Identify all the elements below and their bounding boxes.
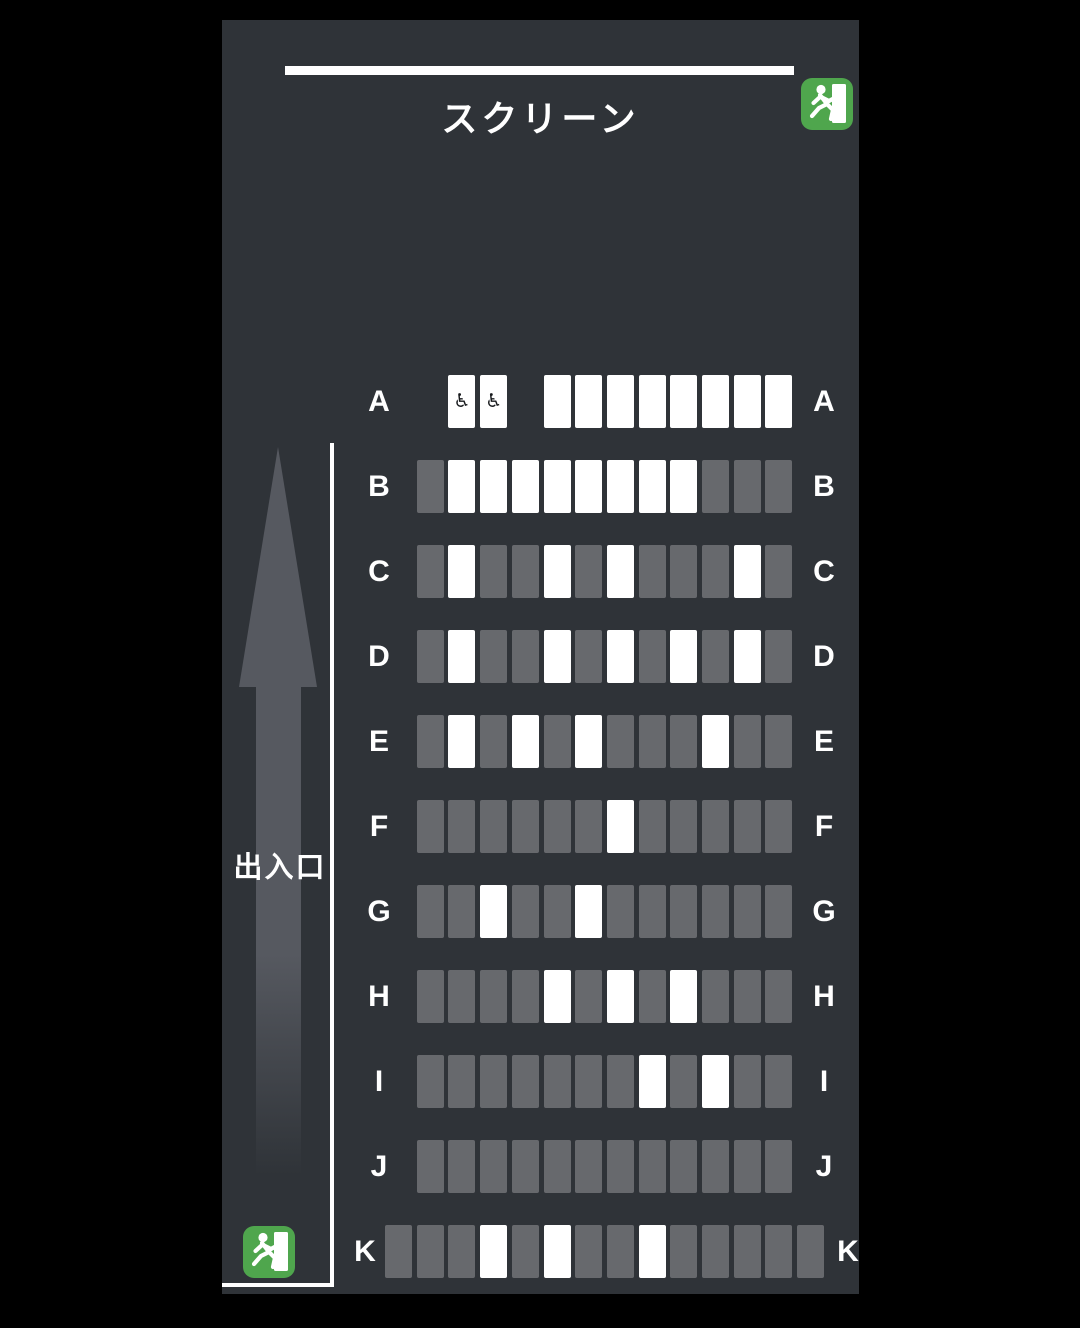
row-label-E-right: E <box>804 715 844 768</box>
row-label-E-left: E <box>359 715 399 768</box>
seat-J9 <box>639 1140 666 1193</box>
row-label-B-right: B <box>804 460 844 513</box>
seat-H2 <box>417 970 444 1023</box>
seat-J6 <box>544 1140 571 1193</box>
seat-I6 <box>544 1055 571 1108</box>
seat-K11 <box>702 1225 729 1278</box>
seat-H8[interactable] <box>607 970 634 1023</box>
seat-K4[interactable] <box>480 1225 507 1278</box>
seat-C4 <box>480 545 507 598</box>
seat-G3 <box>448 885 475 938</box>
row-label-J-right: J <box>804 1140 844 1193</box>
wheelchair-icon: ♿ <box>453 392 470 411</box>
seat-A13[interactable] <box>765 375 792 428</box>
seat-E8 <box>607 715 634 768</box>
theater-panel: スクリーン 出入口 <box>222 20 859 1294</box>
seat-H7 <box>575 970 602 1023</box>
seat-D9 <box>639 630 666 683</box>
seat-C9 <box>639 545 666 598</box>
seat-E4 <box>480 715 507 768</box>
seat-E11[interactable] <box>702 715 729 768</box>
seat-row-C: CC <box>222 545 859 598</box>
seat-H5 <box>512 970 539 1023</box>
seat-C7 <box>575 545 602 598</box>
seat-grid: AA♿♿BBCCDDEEFFGGHHIIJJKK <box>222 20 859 1294</box>
seat-B12 <box>734 460 761 513</box>
seat-K10 <box>670 1225 697 1278</box>
seat-D13 <box>765 630 792 683</box>
seat-F2 <box>417 800 444 853</box>
seat-K9[interactable] <box>639 1225 666 1278</box>
seat-A7[interactable] <box>575 375 602 428</box>
seat-K2 <box>417 1225 444 1278</box>
row-label-F-right: F <box>804 800 844 853</box>
seat-A9[interactable] <box>639 375 666 428</box>
seat-D7 <box>575 630 602 683</box>
seat-E13 <box>765 715 792 768</box>
seat-D4 <box>480 630 507 683</box>
seat-I11[interactable] <box>702 1055 729 1108</box>
seat-C2 <box>417 545 444 598</box>
seat-G5 <box>512 885 539 938</box>
seat-G11 <box>702 885 729 938</box>
row-label-K-left: K <box>345 1225 385 1278</box>
seat-row-G: GG <box>222 885 859 938</box>
seat-J11 <box>702 1140 729 1193</box>
seat-row-J: JJ <box>222 1140 859 1193</box>
seat-J4 <box>480 1140 507 1193</box>
seat-G9 <box>639 885 666 938</box>
seat-E5[interactable] <box>512 715 539 768</box>
seat-G4[interactable] <box>480 885 507 938</box>
seat-A11[interactable] <box>702 375 729 428</box>
seat-C5 <box>512 545 539 598</box>
seat-row-H: HH <box>222 970 859 1023</box>
seat-K8 <box>607 1225 634 1278</box>
row-label-K-right: K <box>828 1225 868 1278</box>
seat-I4 <box>480 1055 507 1108</box>
seat-H6[interactable] <box>544 970 571 1023</box>
seat-I3 <box>448 1055 475 1108</box>
seat-I7 <box>575 1055 602 1108</box>
seat-J7 <box>575 1140 602 1193</box>
seat-A3[interactable]: ♿ <box>448 375 475 428</box>
seat-G12 <box>734 885 761 938</box>
seat-D10[interactable] <box>670 630 697 683</box>
seat-B10[interactable] <box>670 460 697 513</box>
row-label-C-left: C <box>359 545 399 598</box>
seat-F8[interactable] <box>607 800 634 853</box>
seat-C12[interactable] <box>734 545 761 598</box>
seat-G6 <box>544 885 571 938</box>
seat-K3 <box>448 1225 475 1278</box>
seat-row-A: AA♿♿ <box>222 375 859 428</box>
seat-row-E: EE <box>222 715 859 768</box>
seat-B3[interactable] <box>448 460 475 513</box>
row-label-A-left: A <box>359 375 399 428</box>
seat-J10 <box>670 1140 697 1193</box>
seat-F9 <box>639 800 666 853</box>
seat-C11 <box>702 545 729 598</box>
seat-A4[interactable]: ♿ <box>480 375 507 428</box>
seat-J5 <box>512 1140 539 1193</box>
row-label-C-right: C <box>804 545 844 598</box>
seat-C3[interactable] <box>448 545 475 598</box>
seat-E12 <box>734 715 761 768</box>
seat-B5[interactable] <box>512 460 539 513</box>
seat-I8 <box>607 1055 634 1108</box>
seat-A8[interactable] <box>607 375 634 428</box>
seat-B2 <box>417 460 444 513</box>
seat-row-B: BB <box>222 460 859 513</box>
seat-F10 <box>670 800 697 853</box>
seat-E6 <box>544 715 571 768</box>
row-label-I-left: I <box>359 1055 399 1108</box>
seat-K5 <box>512 1225 539 1278</box>
seat-C6[interactable] <box>544 545 571 598</box>
seat-B8[interactable] <box>607 460 634 513</box>
seat-row-I: II <box>222 1055 859 1108</box>
row-label-F-left: F <box>359 800 399 853</box>
row-label-G-left: G <box>359 885 399 938</box>
seat-H3 <box>448 970 475 1023</box>
seat-B7[interactable] <box>575 460 602 513</box>
seat-F7 <box>575 800 602 853</box>
seat-B13 <box>765 460 792 513</box>
seat-B11 <box>702 460 729 513</box>
seat-I10 <box>670 1055 697 1108</box>
seat-H11 <box>702 970 729 1023</box>
seat-G13 <box>765 885 792 938</box>
seat-C8[interactable] <box>607 545 634 598</box>
seat-F11 <box>702 800 729 853</box>
row-label-H-left: H <box>359 970 399 1023</box>
seat-E2 <box>417 715 444 768</box>
seat-G10 <box>670 885 697 938</box>
seat-J13 <box>765 1140 792 1193</box>
row-label-D-right: D <box>804 630 844 683</box>
seat-E3[interactable] <box>448 715 475 768</box>
row-label-I-right: I <box>804 1055 844 1108</box>
seat-I5 <box>512 1055 539 1108</box>
seat-C10 <box>670 545 697 598</box>
seat-A6[interactable] <box>544 375 571 428</box>
seat-H4 <box>480 970 507 1023</box>
row-label-J-left: J <box>359 1140 399 1193</box>
seat-B4[interactable] <box>480 460 507 513</box>
seat-D8[interactable] <box>607 630 634 683</box>
entrance-label: 出入口 <box>226 844 334 886</box>
seat-D3[interactable] <box>448 630 475 683</box>
seat-I2 <box>417 1055 444 1108</box>
seat-J12 <box>734 1140 761 1193</box>
seat-E9 <box>639 715 666 768</box>
seat-I13 <box>765 1055 792 1108</box>
seat-F4 <box>480 800 507 853</box>
seat-F3 <box>448 800 475 853</box>
seat-F12 <box>734 800 761 853</box>
seat-H12 <box>734 970 761 1023</box>
seat-G8 <box>607 885 634 938</box>
seat-H10[interactable] <box>670 970 697 1023</box>
seat-I12 <box>734 1055 761 1108</box>
seat-H13 <box>765 970 792 1023</box>
seat-J2 <box>417 1140 444 1193</box>
seat-D2 <box>417 630 444 683</box>
seat-B6[interactable] <box>544 460 571 513</box>
seat-row-K: KK <box>222 1225 859 1278</box>
seat-K13 <box>765 1225 792 1278</box>
seat-A10[interactable] <box>670 375 697 428</box>
seat-selection-screen: スクリーン 出入口 <box>0 0 1080 1328</box>
row-label-G-right: G <box>804 885 844 938</box>
seat-F6 <box>544 800 571 853</box>
row-label-A-right: A <box>804 375 844 428</box>
seat-K14 <box>797 1225 824 1278</box>
seat-D5 <box>512 630 539 683</box>
seat-D6[interactable] <box>544 630 571 683</box>
seat-J3 <box>448 1140 475 1193</box>
seat-G2 <box>417 885 444 938</box>
seat-K12 <box>734 1225 761 1278</box>
seat-D12[interactable] <box>734 630 761 683</box>
seat-I9[interactable] <box>639 1055 666 1108</box>
seat-K6[interactable] <box>544 1225 571 1278</box>
wheelchair-icon: ♿ <box>485 392 502 411</box>
seat-D11 <box>702 630 729 683</box>
seat-E10 <box>670 715 697 768</box>
seat-C13 <box>765 545 792 598</box>
seat-K7 <box>575 1225 602 1278</box>
seat-row-D: DD <box>222 630 859 683</box>
seat-F5 <box>512 800 539 853</box>
seat-K1 <box>385 1225 412 1278</box>
seat-G7[interactable] <box>575 885 602 938</box>
seat-H9 <box>639 970 666 1023</box>
seat-J8 <box>607 1140 634 1193</box>
seat-A12[interactable] <box>734 375 761 428</box>
row-label-B-left: B <box>359 460 399 513</box>
seat-B9[interactable] <box>639 460 666 513</box>
row-label-D-left: D <box>359 630 399 683</box>
seat-F13 <box>765 800 792 853</box>
row-label-H-right: H <box>804 970 844 1023</box>
seat-E7[interactable] <box>575 715 602 768</box>
